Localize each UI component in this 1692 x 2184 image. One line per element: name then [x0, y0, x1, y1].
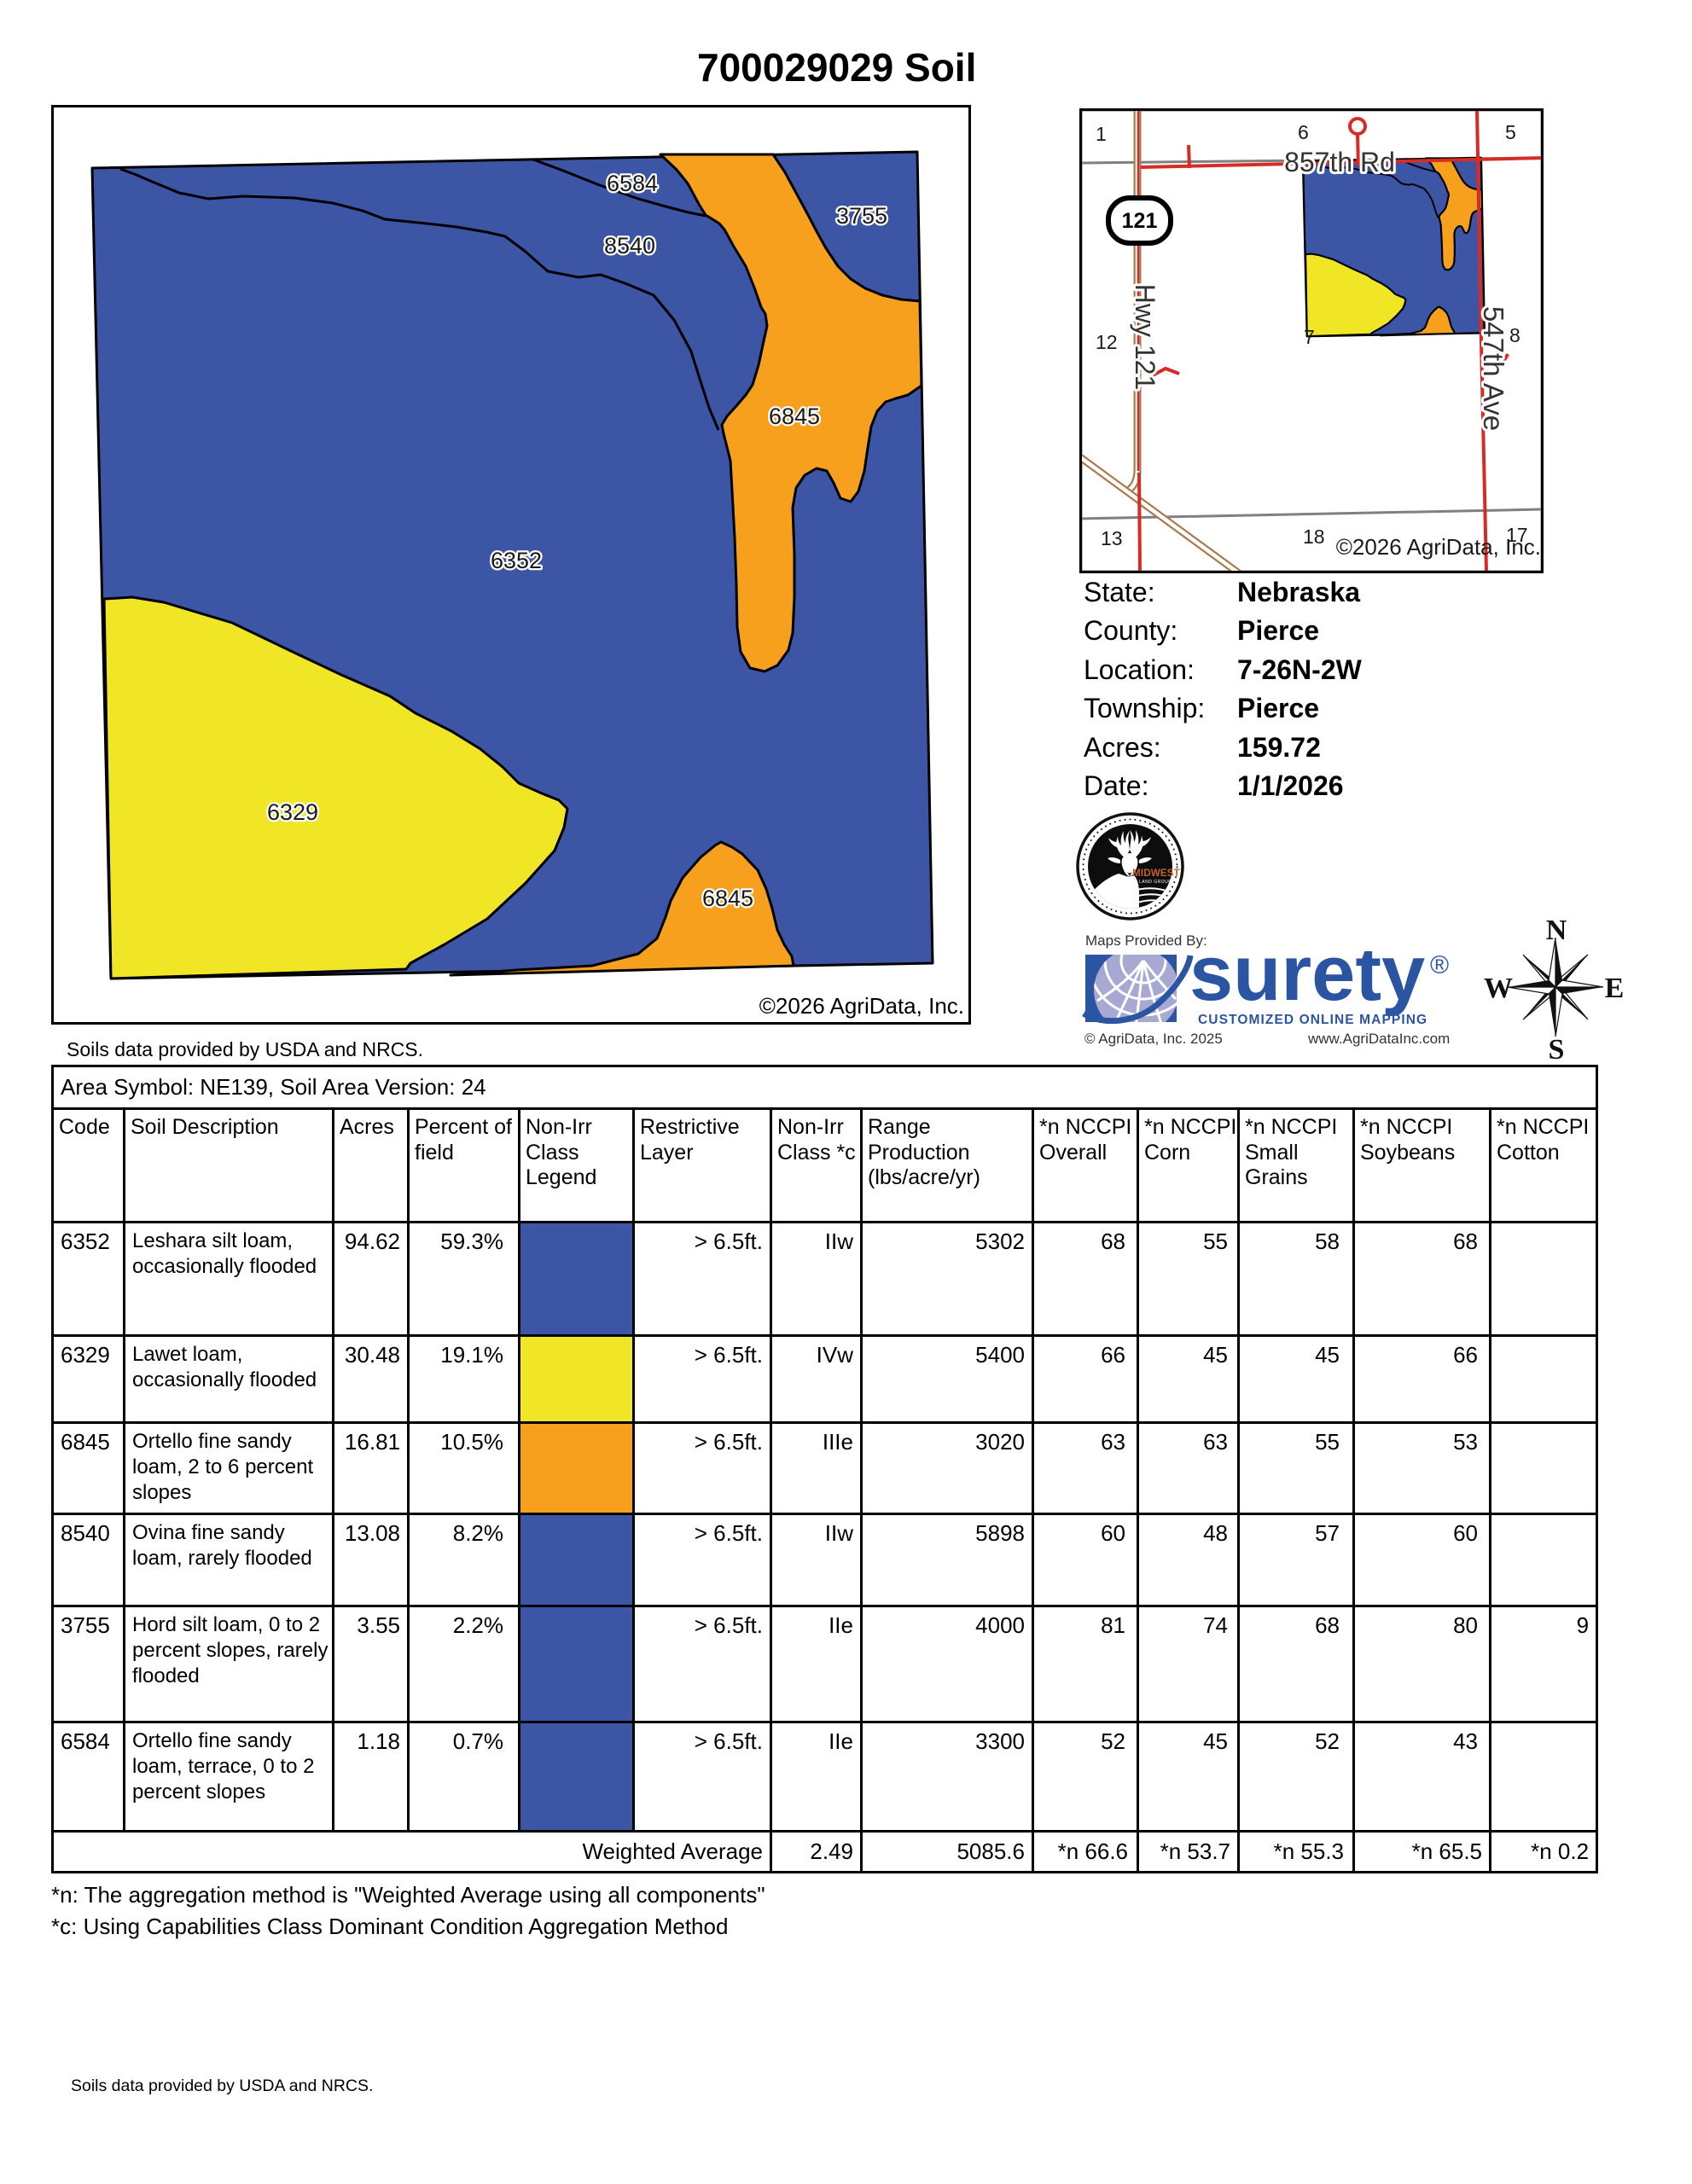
svg-text:surety: surety [1189, 951, 1425, 1017]
svg-text:6845: 6845 [702, 886, 753, 911]
svg-text:©2026 AgriData, Inc.: ©2026 AgriData, Inc. [1336, 534, 1541, 560]
svg-text:Hwy 121: Hwy 121 [1130, 284, 1160, 391]
svg-text:www.AgriDataInc.com: www.AgriDataInc.com [1307, 1031, 1450, 1047]
svg-text:547th Ave: 547th Ave [1478, 306, 1509, 431]
svg-text:7: 7 [1304, 326, 1315, 348]
svg-text:3755: 3755 [836, 203, 887, 229]
svg-text:W: W [1484, 973, 1513, 1004]
svg-text:857th Rd: 857th Rd [1284, 147, 1395, 177]
svg-text:13: 13 [1101, 527, 1123, 549]
svg-text:6: 6 [1298, 121, 1309, 143]
svg-text:121: 121 [1122, 209, 1158, 233]
svg-text:©2026 AgriData, Inc.: ©2026 AgriData, Inc. [759, 993, 964, 1019]
svg-text:CUSTOMIZED ONLINE MAPPING: CUSTOMIZED ONLINE MAPPING [1198, 1013, 1427, 1027]
svg-text:6584: 6584 [607, 171, 658, 196]
svg-text:18: 18 [1303, 526, 1325, 548]
svg-text:© AgriData, Inc. 2025: © AgriData, Inc. 2025 [1084, 1031, 1223, 1047]
svg-text:S: S [1549, 1034, 1565, 1062]
svg-text:®: ® [1430, 951, 1449, 979]
svg-text:6329: 6329 [267, 799, 318, 825]
svg-text:1: 1 [1096, 123, 1107, 145]
svg-text:MIDWEST: MIDWEST [1132, 868, 1180, 879]
svg-text:8: 8 [1509, 324, 1520, 346]
svg-text:E: E [1605, 973, 1625, 1004]
svg-text:N: N [1546, 917, 1567, 946]
svg-text:6352: 6352 [491, 548, 542, 573]
svg-text:12: 12 [1096, 331, 1118, 353]
svg-text:6845: 6845 [769, 404, 820, 429]
svg-text:5: 5 [1505, 121, 1516, 143]
svg-text:8540: 8540 [604, 233, 655, 258]
svg-text:LAND GROUP: LAND GROUP [1139, 880, 1172, 885]
